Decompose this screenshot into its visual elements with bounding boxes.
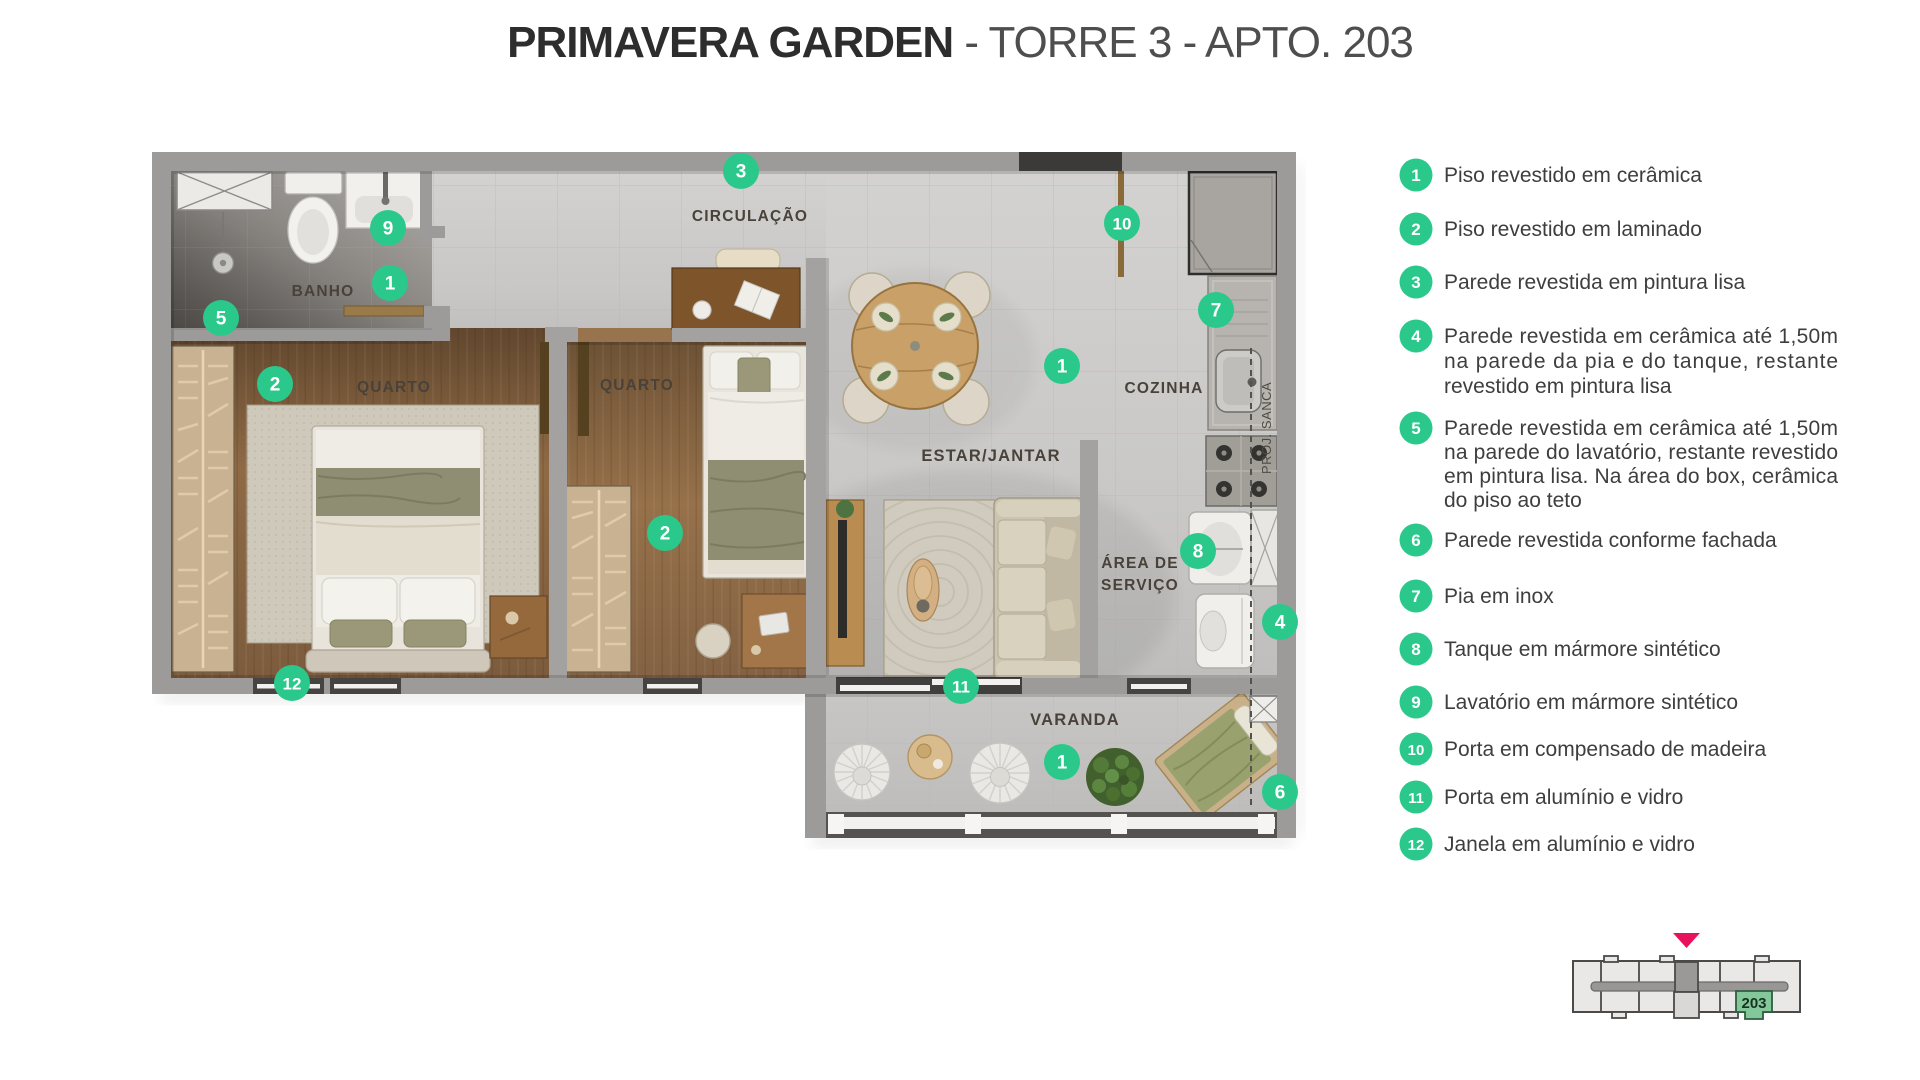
svg-text:5: 5 <box>216 309 227 330</box>
svg-text:COZINHA: COZINHA <box>1124 380 1203 397</box>
svg-text:CIRCULAÇÃO: CIRCULAÇÃO <box>692 207 808 225</box>
svg-text:Janela em alumínio e vidro: Janela em alumínio e vidro <box>1444 833 1695 856</box>
svg-text:9: 9 <box>1411 693 1420 712</box>
svg-text:8: 8 <box>1193 542 1204 563</box>
svg-text:ÁREA DE: ÁREA DE <box>1101 555 1179 572</box>
svg-text:Parede revestida em pintura li: Parede revestida em pintura lisa <box>1444 271 1745 294</box>
svg-text:Porta em compensado de madeira: Porta em compensado de madeira <box>1444 738 1766 761</box>
svg-text:Tanque em mármore sintético: Tanque em mármore sintético <box>1444 638 1721 661</box>
svg-text:Parede revestida em cerâmica a: Parede revestida em cerâmica até 1,50m <box>1444 417 1838 440</box>
svg-text:Parede revestida em cerâmica a: Parede revestida em cerâmica até 1,50m <box>1444 325 1838 348</box>
svg-text:Parede revestida conforme fach: Parede revestida conforme fachada <box>1444 529 1777 552</box>
svg-text:203: 203 <box>1741 995 1766 1012</box>
svg-text:9: 9 <box>383 219 394 240</box>
svg-text:1: 1 <box>385 274 396 295</box>
svg-text:em pintura lisa. Na área do bo: em pintura lisa. Na área do box, cerâmic… <box>1444 465 1838 488</box>
svg-text:6: 6 <box>1275 783 1286 804</box>
svg-text:4: 4 <box>1411 327 1421 346</box>
svg-text:8: 8 <box>1411 640 1420 659</box>
svg-text:do piso ao teto: do piso ao teto <box>1444 489 1582 512</box>
svg-text:na parede da pia e do tanque,: na parede da pia e do tanque, restante <box>1444 350 1838 373</box>
svg-text:6: 6 <box>1411 531 1420 550</box>
svg-text:12: 12 <box>283 675 302 694</box>
svg-text:ESTAR/JANTAR: ESTAR/JANTAR <box>921 447 1060 465</box>
svg-text:Piso revestido em laminado: Piso revestido em laminado <box>1444 218 1702 241</box>
svg-text:Piso revestido em cerâmica: Piso revestido em cerâmica <box>1444 164 1702 187</box>
svg-text:PROJ. SANCA: PROJ. SANCA <box>1259 382 1274 474</box>
svg-text:2: 2 <box>1411 220 1420 239</box>
svg-text:1: 1 <box>1057 753 1068 774</box>
svg-text:PRIMAVERA GARDEN - TORRE 3 - A: PRIMAVERA GARDEN - TORRE 3 - APTO. 203 <box>507 18 1413 67</box>
svg-text:1: 1 <box>1057 357 1068 378</box>
svg-text:3: 3 <box>1411 273 1420 292</box>
svg-text:na parede do lavatório, restan: na parede do lavatório, restante revesti… <box>1444 441 1838 464</box>
svg-text:BANHO: BANHO <box>292 283 355 300</box>
svg-text:7: 7 <box>1211 301 1222 322</box>
svg-text:4: 4 <box>1275 613 1286 634</box>
svg-text:11: 11 <box>1408 790 1424 807</box>
svg-text:Pia em inox: Pia em inox <box>1444 585 1554 608</box>
svg-text:QUARTO: QUARTO <box>357 379 431 396</box>
svg-text:5: 5 <box>1411 419 1420 438</box>
svg-text:QUARTO: QUARTO <box>600 377 674 394</box>
svg-text:10: 10 <box>1113 215 1132 234</box>
svg-text:VARANDA: VARANDA <box>1030 711 1120 729</box>
svg-text:1: 1 <box>1411 166 1420 185</box>
svg-text:10: 10 <box>1408 742 1425 759</box>
svg-text:2: 2 <box>660 524 671 545</box>
svg-text:3: 3 <box>736 162 747 183</box>
svg-text:Lavatório em mármore sintético: Lavatório em mármore sintético <box>1444 691 1738 714</box>
svg-text:Porta em alumínio e vidro: Porta em alumínio e vidro <box>1444 786 1683 809</box>
svg-text:11: 11 <box>952 678 970 697</box>
svg-text:SERVIÇO: SERVIÇO <box>1101 577 1179 594</box>
svg-text:7: 7 <box>1411 587 1420 606</box>
svg-text:revestido em pintura lisa: revestido em pintura lisa <box>1444 375 1672 398</box>
svg-text:12: 12 <box>1408 837 1425 854</box>
svg-text:2: 2 <box>270 375 281 396</box>
